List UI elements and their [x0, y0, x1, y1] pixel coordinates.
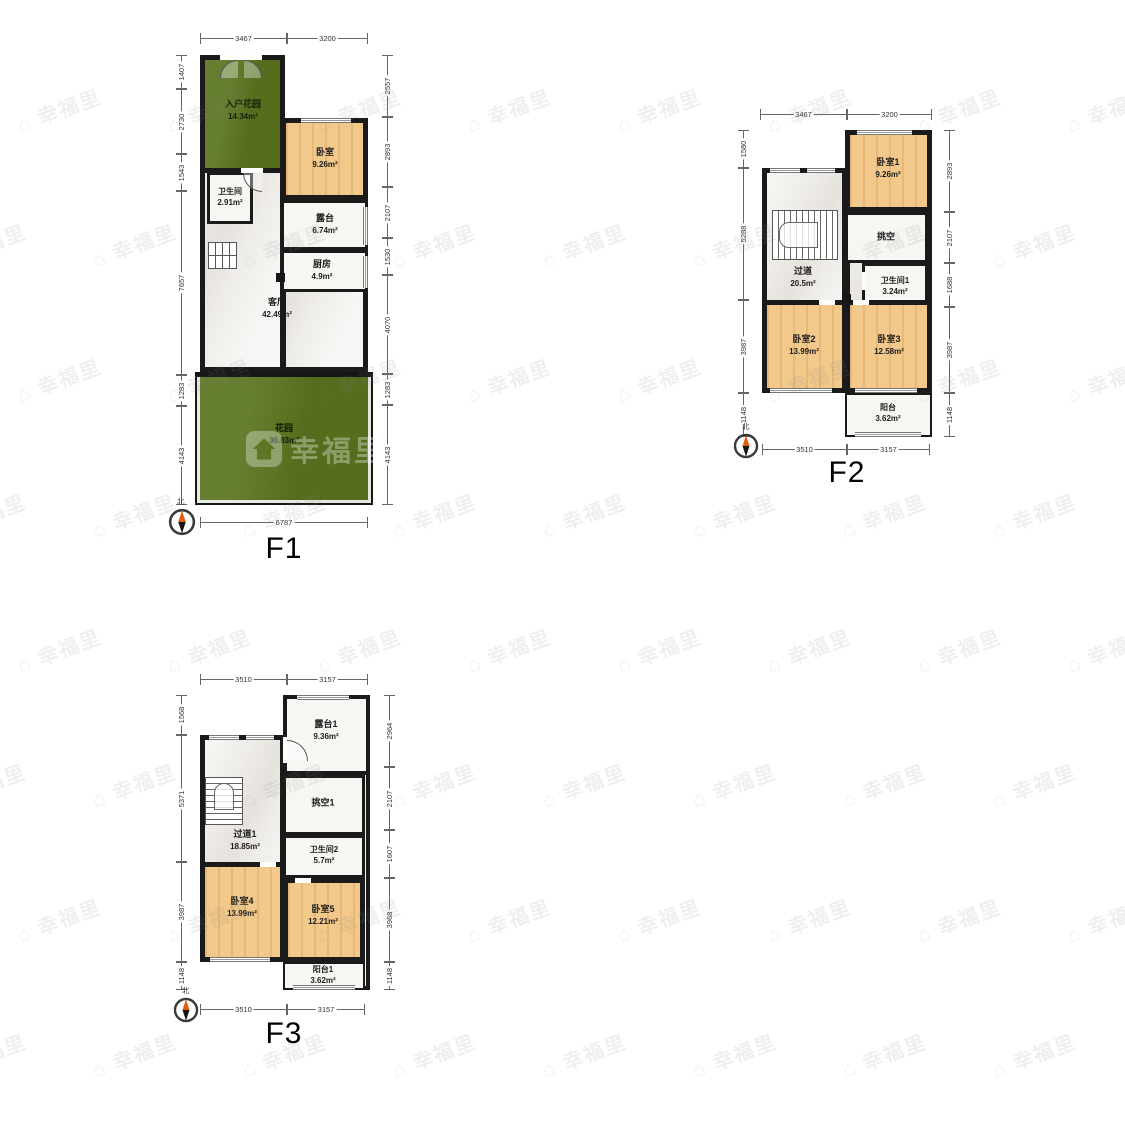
watermark-tile: ⌂ 幸福里: [1063, 891, 1125, 948]
window-icon: [857, 130, 912, 135]
window-icon: [770, 168, 800, 173]
dim-top: 3200: [847, 108, 932, 121]
dim-right: 1283: [381, 374, 394, 405]
dim-right: 2107: [381, 187, 394, 238]
dim-right: 3968: [383, 878, 396, 962]
watermark-tile: ⌂ 幸福里: [838, 0, 930, 3]
watermark-tile: ⌂ 幸福里: [988, 216, 1080, 273]
watermark-tile: ⌂ 幸福里: [688, 756, 780, 813]
room-label: 卧室19.26m²: [875, 156, 900, 180]
room-label: 阳台13.62m²: [310, 964, 335, 986]
dim-right: 1148: [943, 393, 956, 437]
compass-icon: [173, 997, 199, 1023]
room-label: 卧室312.58m²: [874, 333, 904, 357]
watermark-tile: ⌂ 幸福里: [538, 756, 630, 813]
watermark-tile: ⌂ 幸福里: [763, 891, 855, 948]
dim-left: 1407: [175, 55, 188, 89]
watermark-tile: ⌂ 幸福里: [88, 0, 180, 3]
watermark-tile: ⌂ 幸福里: [613, 891, 705, 948]
window-icon: [209, 735, 239, 740]
room-label: 卫生间13.24m²: [881, 275, 909, 297]
watermark-tile: ⌂ 幸福里: [388, 0, 480, 3]
dim-top: 3467: [760, 108, 847, 121]
dim-bottom: 3157: [287, 1003, 365, 1016]
window-icon: [210, 957, 270, 962]
dim-left: 3987: [737, 300, 750, 393]
watermark-tile: ⌂ 幸福里: [988, 756, 1080, 813]
room-label: 露台6.74m²: [312, 212, 337, 236]
floorplan-canvas: 入户花园14.34m² 卧室9.26m² 卫生间2.91m² 露台6.74m² …: [0, 0, 1125, 1125]
room-label: 过道20.5m²: [790, 265, 815, 289]
dim-left: 1283: [175, 375, 188, 406]
floorplan-f3: 露台19.36m² 挑空1 卫生间25.7m² 过道118.85m² 卧室413…: [165, 645, 415, 1055]
window-icon: [807, 168, 835, 173]
watermark-tile: ⌂ 幸福里: [913, 891, 1005, 948]
watermark-tile: ⌂ 幸福里: [13, 351, 105, 408]
room-label: 卧室9.26m²: [312, 146, 337, 170]
floorplan-f2: 卧室19.26m² 挑空 卫生间13.24m² 过道20.5m² 卧室213.9…: [715, 100, 965, 490]
room-label: 卫生间2.91m²: [217, 186, 242, 208]
watermark-tile: ⌂ 幸福里: [463, 621, 555, 678]
watermark-tile: ⌂ 幸福里: [613, 351, 705, 408]
room-label: 厨房4.9m²: [312, 258, 333, 282]
watermark-tile: ⌂ 幸福里: [988, 1026, 1080, 1083]
watermark-tile: ⌂ 幸福里: [463, 81, 555, 138]
column-marker: [276, 273, 285, 282]
dim-top: 3157: [287, 673, 368, 686]
watermark-tile: ⌂ 幸福里: [688, 1026, 780, 1083]
window-icon: [246, 735, 274, 740]
room-label: 挑空: [877, 231, 895, 244]
dim-left: 4143: [175, 406, 188, 505]
watermark-tile: ⌂ 幸福里: [688, 486, 780, 543]
watermark-tile: ⌂ 幸福里: [13, 81, 105, 138]
compass-icon: [733, 433, 759, 459]
floor-label-f2: F2: [762, 456, 932, 490]
dim-left: 1568: [175, 695, 188, 735]
room-label: 挑空1: [311, 797, 334, 810]
dim-left: 5371: [175, 735, 188, 862]
watermark-tile: ⌂ 幸福里: [538, 486, 630, 543]
compass-icon: [168, 508, 196, 536]
watermark-tile: ⌂ 幸福里: [988, 486, 1080, 543]
window-icon: [770, 388, 832, 393]
dim-left: 7657: [175, 191, 188, 375]
column-marker: [842, 294, 851, 303]
window-icon: [363, 256, 368, 288]
dim-right: 2557: [381, 55, 394, 117]
dim-left: 1580: [737, 130, 750, 168]
window-icon: [363, 207, 368, 245]
room-label: 阳台3.62m²: [875, 402, 900, 424]
window-icon: [855, 432, 921, 437]
watermark-tile: ⌂ 幸福里: [613, 81, 705, 138]
room-label: 卧室213.99m²: [789, 333, 819, 357]
room-label: 卫生间25.7m²: [310, 844, 338, 866]
dim-top: 3510: [200, 673, 287, 686]
dim-right: 1148: [383, 962, 396, 990]
stairs-icon: [772, 210, 838, 260]
window-icon: [297, 695, 349, 700]
north-label: 北: [182, 985, 190, 996]
watermark-tile: ⌂ 幸福里: [0, 0, 30, 3]
north-label: 北: [177, 496, 185, 507]
dim-right: 2893: [381, 117, 394, 187]
watermark-tile: ⌂ 幸福里: [538, 216, 630, 273]
dim-left: 5288: [737, 168, 750, 300]
dim-bottom: 6787: [200, 516, 368, 529]
floorplan-f1: 入户花园14.34m² 卧室9.26m² 卫生间2.91m² 露台6.74m² …: [165, 30, 415, 575]
watermark-tile: ⌂ 幸福里: [0, 1026, 30, 1083]
watermark-tile: ⌂ 幸福里: [1063, 81, 1125, 138]
dim-right: 4070: [381, 275, 394, 374]
window-icon: [855, 388, 917, 393]
watermark-tile: ⌂ 幸福里: [13, 621, 105, 678]
dim-top: 3467: [200, 32, 287, 45]
dim-right: 2964: [383, 695, 396, 767]
floor-label-f3: F3: [200, 1017, 368, 1051]
watermark-tile: ⌂ 幸福里: [463, 351, 555, 408]
dim-bottom: 3510: [762, 443, 847, 456]
watermark-tile: ⌂ 幸福里: [238, 0, 330, 3]
dim-bottom: 3157: [847, 443, 930, 456]
dim-left: 2730: [175, 89, 188, 154]
brand-watermark-text: 幸福里: [290, 428, 386, 470]
dim-right: 1530: [381, 238, 394, 275]
room-label: 卧室512.21m²: [308, 903, 338, 927]
watermark-tile: ⌂ 幸福里: [13, 891, 105, 948]
watermark-tile: ⌂ 幸福里: [1063, 621, 1125, 678]
room-label: 入户花园14.34m²: [225, 98, 261, 122]
watermark-tile: ⌂ 幸福里: [1063, 351, 1125, 408]
dim-top: 3200: [287, 32, 368, 45]
room-label: 露台19.36m²: [313, 718, 338, 742]
watermark-tile: ⌂ 幸福里: [913, 621, 1005, 678]
watermark-tile: ⌂ 幸福里: [0, 216, 30, 273]
dim-right: 2893: [943, 130, 956, 212]
stairs-icon: [208, 242, 237, 269]
dim-left: 3987: [175, 862, 188, 962]
dim-right: 3987: [943, 307, 956, 393]
dim-right: 1607: [383, 830, 396, 878]
watermark-tile: ⌂ 幸福里: [613, 621, 705, 678]
watermark-tile: ⌂ 幸福里: [988, 0, 1080, 3]
watermark-tile: ⌂ 幸福里: [463, 891, 555, 948]
watermark-tile: ⌂ 幸福里: [763, 621, 855, 678]
floor-label-f1: F1: [200, 532, 368, 566]
brand-watermark: 幸福里: [245, 428, 386, 470]
watermark-tile: ⌂ 幸福里: [688, 0, 780, 3]
room-label: 客厅42.49m²: [262, 296, 292, 320]
watermark-tile: ⌂ 幸福里: [0, 756, 30, 813]
watermark-tile: ⌂ 幸福里: [0, 486, 30, 543]
dim-right: 1688: [943, 263, 956, 307]
room-label: 卧室413.99m²: [227, 895, 257, 919]
dim-left: 1543: [175, 154, 188, 191]
dim-right: 2107: [943, 212, 956, 263]
house-logo-icon: [245, 430, 283, 468]
watermark-tile: ⌂ 幸福里: [838, 486, 930, 543]
dim-right: 2107: [383, 767, 396, 830]
watermark-tile: ⌂ 幸福里: [838, 756, 930, 813]
dim-bottom: 3510: [200, 1003, 287, 1016]
watermark-tile: ⌂ 幸福里: [838, 1026, 930, 1083]
watermark-tile: ⌂ 幸福里: [538, 0, 630, 3]
watermark-tile: ⌂ 幸福里: [538, 1026, 630, 1083]
window-icon: [301, 118, 351, 123]
stairs-icon: [205, 777, 243, 825]
north-label: 北: [742, 421, 750, 432]
room-label: 过道118.85m²: [230, 828, 260, 852]
